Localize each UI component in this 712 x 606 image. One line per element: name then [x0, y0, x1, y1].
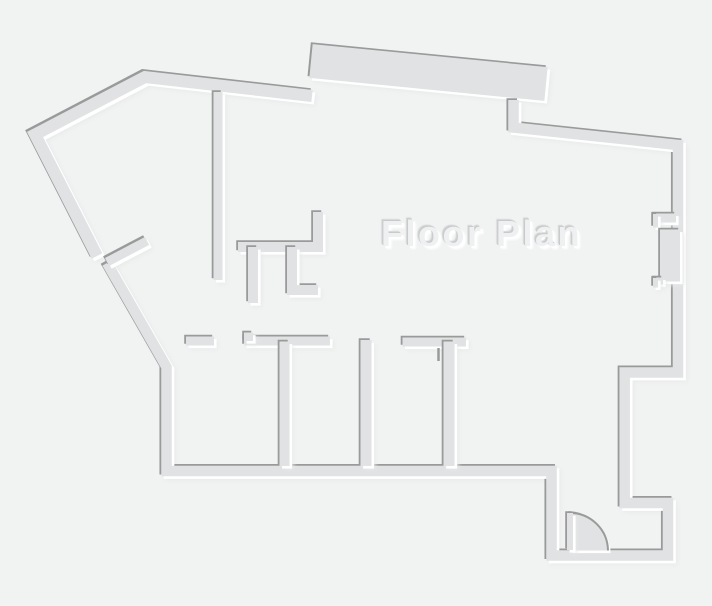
- floor-plan-svg: [0, 0, 712, 606]
- interior-wall-closet-top-edge-dark: [236, 210, 316, 245]
- floor-plan-title: Floor Plan: [381, 216, 582, 252]
- outer-wall-main-soft-shadow: [111, 104, 682, 560]
- outer-wall-main: [107, 100, 678, 556]
- outer-wall-main-edge-dark: [105, 98, 676, 554]
- parapet-top: [311, 61, 546, 84]
- floor-plan-canvas: Floor Plan: [0, 0, 712, 606]
- outer-wall-main-edge-light: [110, 103, 681, 558]
- outer-wall-northwest-edge-dark: [33, 75, 310, 254]
